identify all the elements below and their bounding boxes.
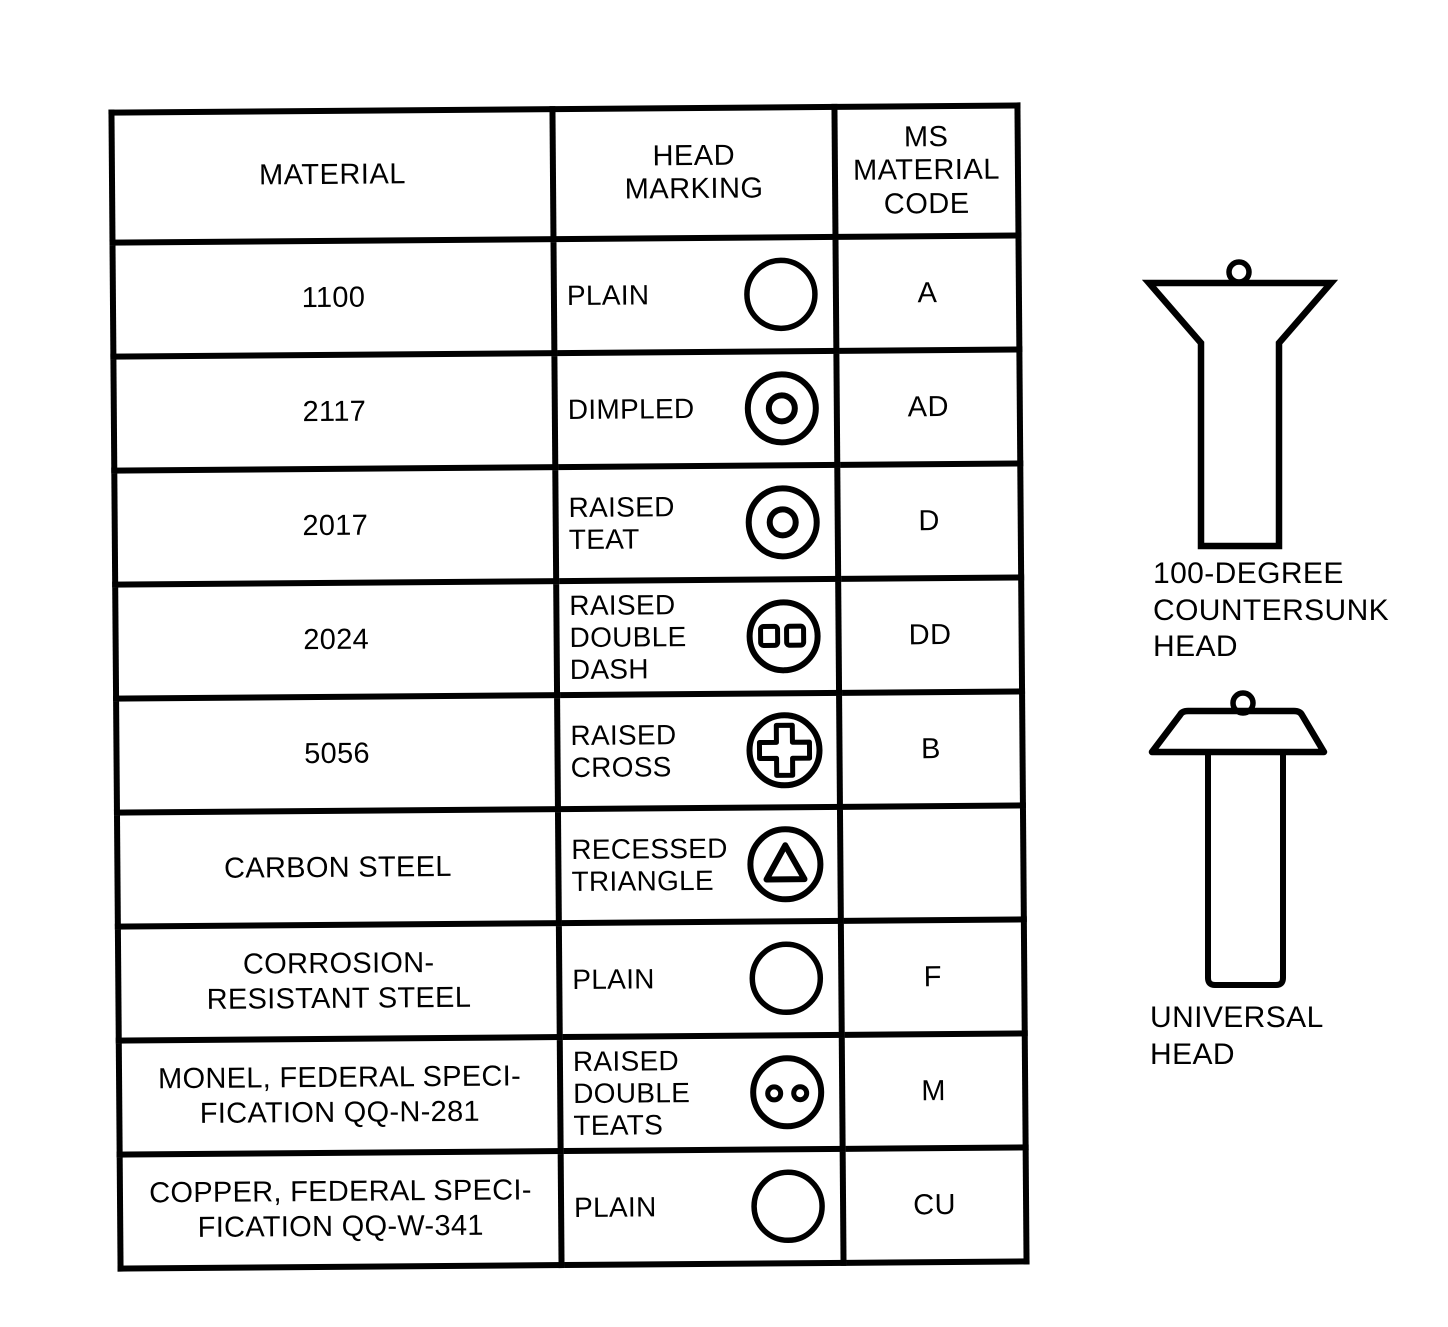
ms-code-cell: B: [839, 691, 1023, 806]
table-row: CARBON STEEL RECESSED TRIANGLE: [117, 805, 1024, 926]
head-marking-cell: RECESSED TRIANGLE: [561, 824, 838, 906]
table-row: 5056 RAISED CROSS B: [116, 691, 1023, 812]
table-row: 2017 RAISED TEAT D: [114, 463, 1021, 584]
table-row: 2117 DIMPLED AD: [113, 349, 1020, 470]
plain-circle-icon: [741, 254, 822, 335]
rivet-shank-outline: [1208, 752, 1283, 985]
head-marking-cell: PLAIN: [557, 254, 834, 336]
header-head-marking: HEAD MARKING: [552, 107, 835, 239]
material-cell: 2024: [115, 581, 557, 698]
head-marking-label: PLAIN: [574, 1191, 657, 1224]
raised-cross-icon: [744, 710, 825, 791]
countersunk-head-label: 100-DEGREE COUNTERSUNK HEAD: [1153, 556, 1389, 666]
header-ms-material-code: MS MATERIAL CODE: [834, 105, 1018, 236]
ms-code-cell: CU: [843, 1147, 1027, 1262]
ms-code-cell: DD: [838, 577, 1022, 692]
recessed-triangle-icon: [745, 824, 826, 905]
table-row: 1100 PLAIN A: [112, 235, 1019, 356]
head-marking-cell: PLAIN: [564, 1166, 841, 1248]
plain-circle-icon: [746, 938, 827, 1019]
material-cell: CORROSION- RESISTANT STEEL: [118, 923, 560, 1040]
ms-code-cell: A: [835, 235, 1019, 350]
head-marking-label: DIMPLED: [568, 393, 695, 426]
head-marking-cell: PLAIN: [562, 938, 839, 1020]
ms-code-cell: M: [842, 1033, 1026, 1148]
raised-teat-icon: [742, 482, 823, 563]
dimpled-icon: [742, 368, 823, 449]
material-cell: 2017: [114, 467, 556, 584]
ms-code-cell: F: [841, 919, 1025, 1034]
ms-code-cell: D: [837, 463, 1021, 578]
table-row: 2024 RAISED DOUBLE DASH DD: [115, 577, 1022, 698]
material-cell: CARBON STEEL: [117, 809, 559, 926]
teat-bump-icon: [1229, 262, 1249, 282]
head-marking-cell: RAISED TEAT: [558, 482, 835, 564]
universal-head-label: UNIVERSAL HEAD: [1150, 1000, 1324, 1073]
ms-code-cell: [840, 805, 1024, 920]
material-cell: 2117: [113, 353, 555, 470]
material-cell: MONEL, FEDERAL SPECI- FICATION QQ-N-281: [119, 1037, 561, 1154]
table-row: COPPER, FEDERAL SPECI- FICATION QQ-W-341…: [120, 1147, 1027, 1268]
head-marking-label: RAISED DOUBLE DASH: [569, 589, 687, 686]
raised-double-dash-icon: [743, 596, 824, 677]
head-marking-label: RAISED CROSS: [570, 719, 677, 784]
head-marking-cell: RAISED DOUBLE TEATS: [563, 1044, 840, 1143]
head-marking-cell: RAISED CROSS: [560, 710, 837, 792]
head-marking-cell: RAISED DOUBLE DASH: [559, 588, 836, 687]
head-marking-cell: DIMPLED: [558, 368, 835, 450]
rivet-head-marking-figure: MATERIAL HEAD MARKING MS MATERIAL CODE 1…: [0, 0, 1448, 1327]
universal-rivet-diagram: [1140, 686, 1340, 1006]
rivet-material-table: MATERIAL HEAD MARKING MS MATERIAL CODE 1…: [108, 102, 1029, 1271]
countersunk-rivet-diagram: [1140, 250, 1340, 555]
header-material: MATERIAL: [111, 109, 553, 242]
table-row: MONEL, FEDERAL SPECI- FICATION QQ-N-281 …: [119, 1033, 1026, 1154]
head-marking-label: RAISED DOUBLE TEATS: [573, 1045, 691, 1142]
ms-code-cell: AD: [836, 349, 1020, 464]
plain-circle-icon: [748, 1166, 829, 1247]
material-cell: 1100: [112, 239, 554, 356]
material-cell: COPPER, FEDERAL SPECI- FICATION QQ-W-341: [120, 1151, 562, 1268]
table-row: CORROSION- RESISTANT STEEL PLAIN F: [118, 919, 1025, 1040]
head-marking-label: RAISED TEAT: [568, 491, 675, 556]
head-marking-label: PLAIN: [572, 963, 655, 996]
head-marking-label: PLAIN: [567, 279, 650, 312]
table-header-row: MATERIAL HEAD MARKING MS MATERIAL CODE: [111, 105, 1018, 242]
head-marking-label: RECESSED TRIANGLE: [571, 833, 728, 899]
raised-double-teats-icon: [747, 1052, 828, 1133]
universal-head-outline: [1152, 711, 1324, 752]
countersunk-head-outline: [1149, 283, 1331, 546]
material-cell: 5056: [116, 695, 558, 812]
